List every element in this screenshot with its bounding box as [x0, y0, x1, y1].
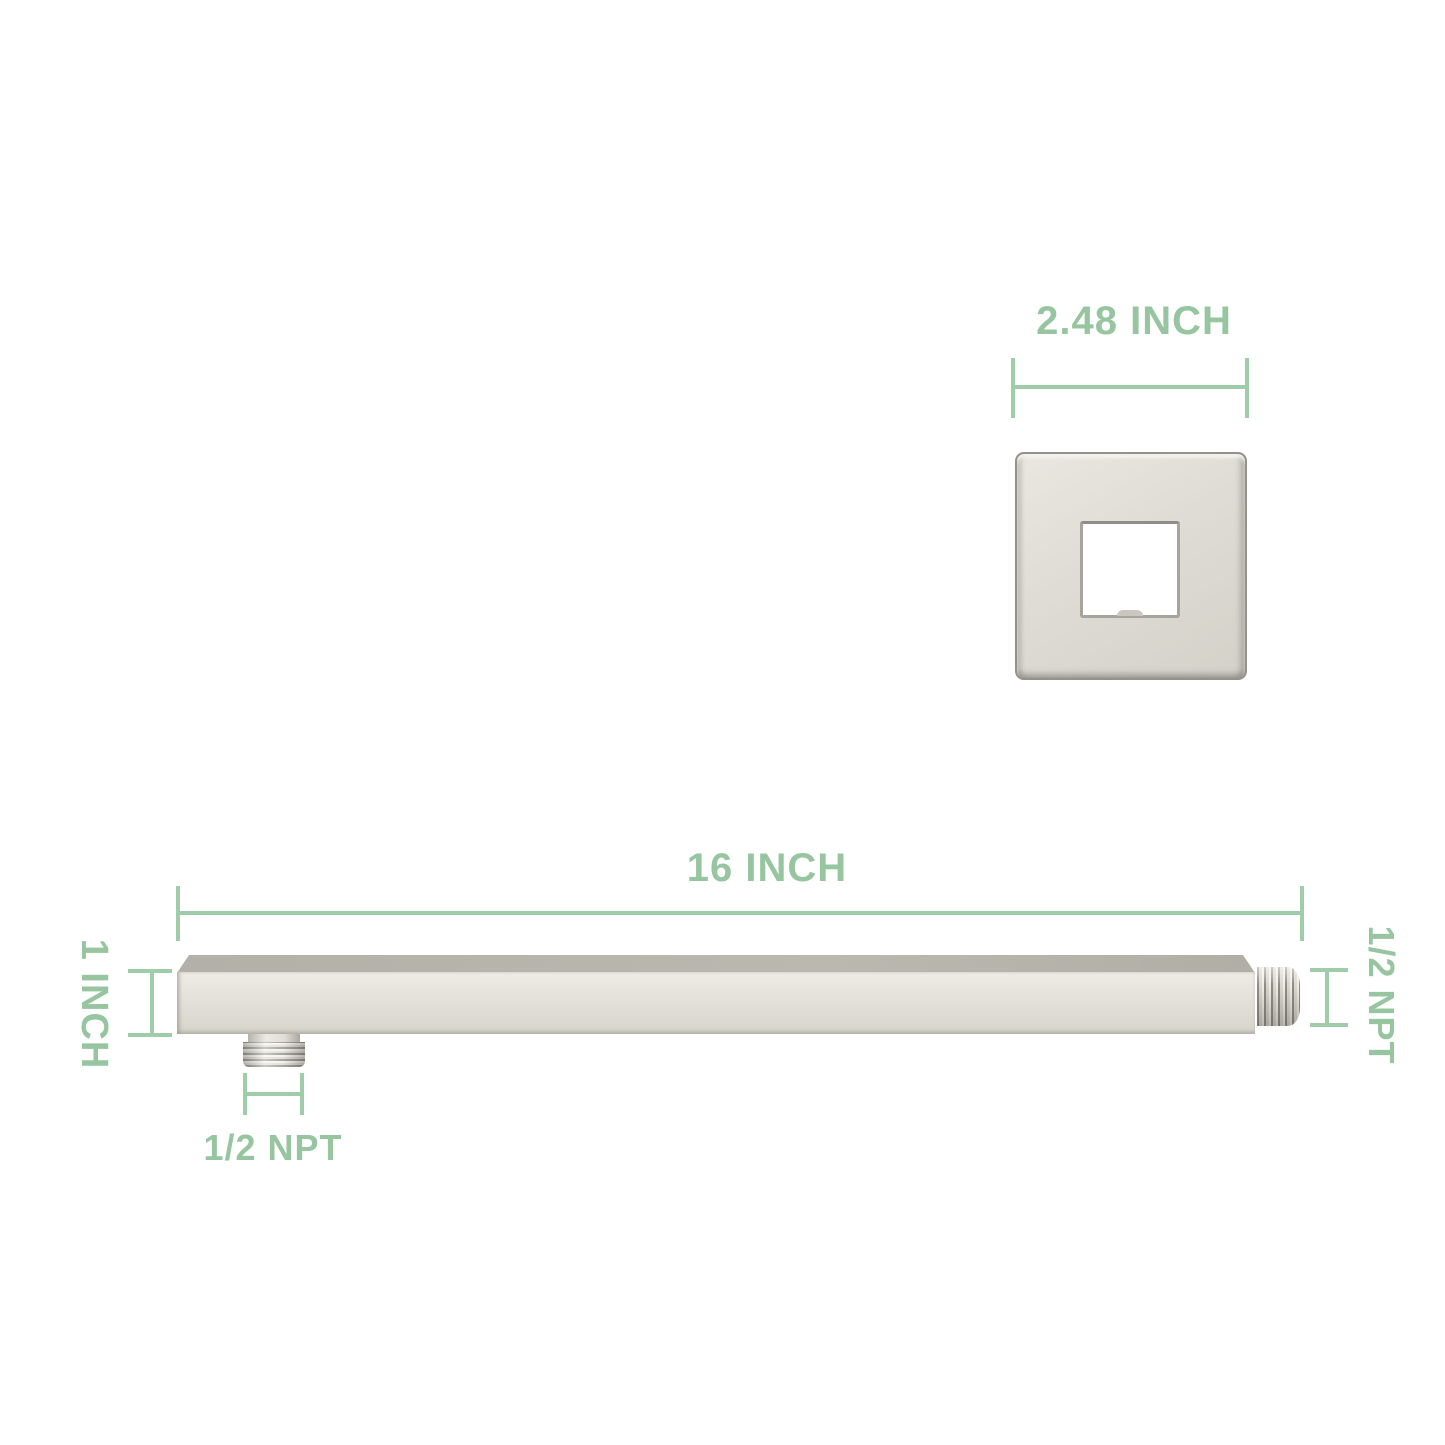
arm-length-label: 16 INCH — [617, 845, 917, 891]
bottom-connector-dimension-line — [245, 1092, 304, 1096]
end-connector-dimension-tick-bottom — [1310, 1023, 1348, 1027]
end-connector-dimension-line — [1325, 970, 1329, 1027]
flange-hole-notch — [1117, 610, 1143, 616]
product-dimension-diagram: 2.48 INCH 16 INCH 1 INCH 1/2 NPT 1/2 NPT — [0, 0, 1445, 1445]
bottom-connector-threads — [243, 1042, 305, 1067]
bottom-threaded-connector — [243, 1034, 305, 1067]
bottom-connector-label: 1/2 NPT — [148, 1126, 398, 1170]
flange-width-dimension-line — [1013, 385, 1247, 389]
end-threaded-connector — [1257, 967, 1300, 1026]
arm-thickness-dimension-line — [150, 971, 154, 1036]
arm-thickness-label: 1 INCH — [73, 924, 115, 1084]
shower-arm-front-face — [177, 972, 1255, 1034]
wall-flange — [1015, 452, 1247, 680]
arm-length-dimension-line — [178, 911, 1302, 915]
end-connector-dimension-tick-top — [1310, 968, 1348, 972]
shower-arm-top-face — [177, 955, 1255, 973]
end-connector-label: 1/2 NPT — [1359, 906, 1403, 1084]
flange-square-hole — [1080, 521, 1180, 618]
flange-width-label: 2.48 INCH — [984, 298, 1284, 344]
